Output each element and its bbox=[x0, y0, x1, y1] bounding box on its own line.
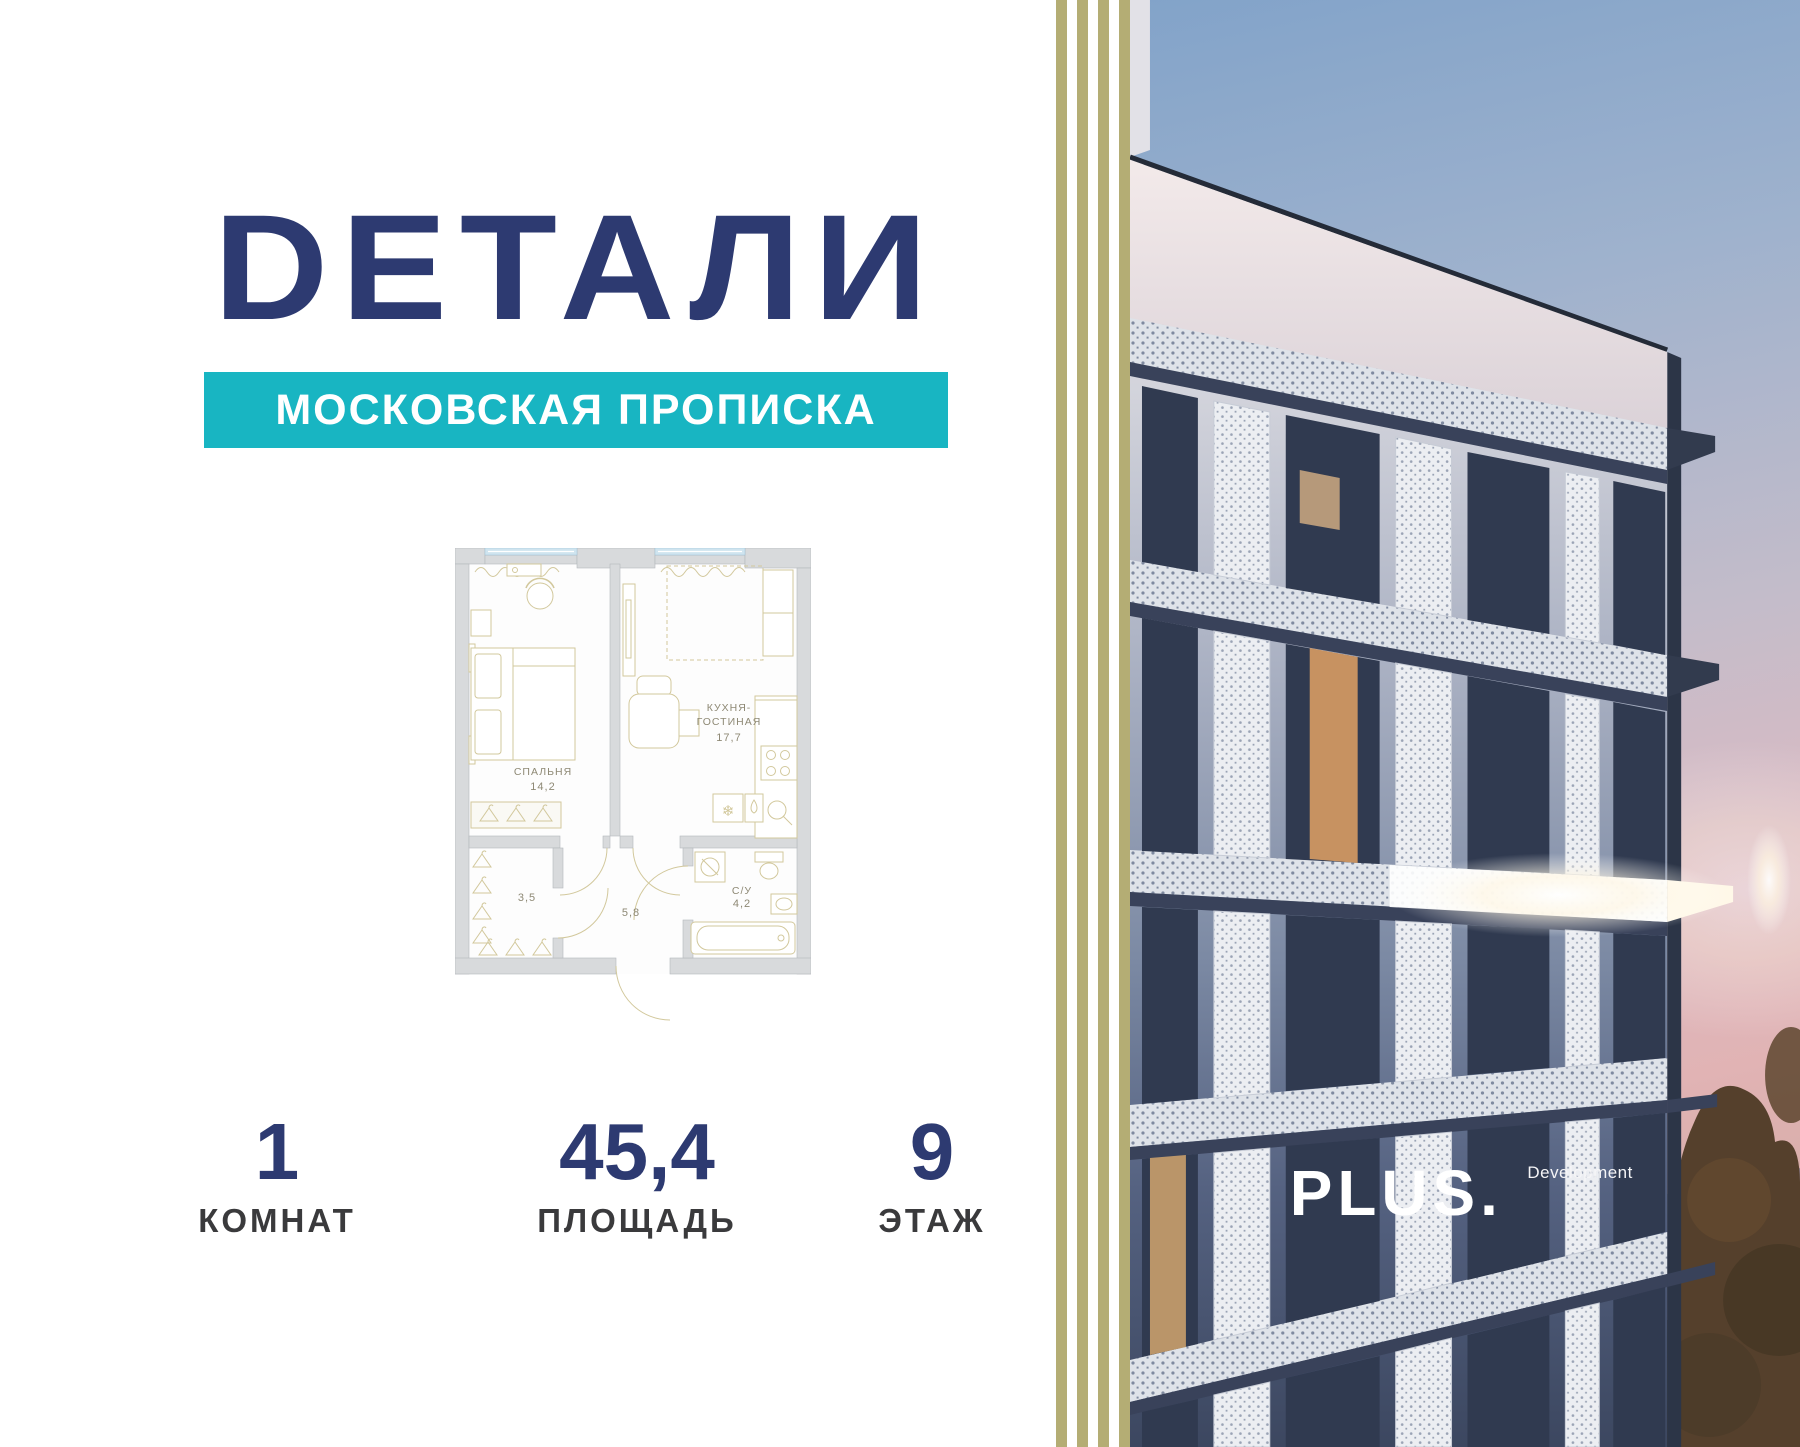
project-logo: DЕТАЛИ bbox=[164, 192, 991, 342]
hallway-area: 5,8 bbox=[622, 907, 640, 919]
bathroom-label: С/У bbox=[732, 885, 752, 897]
tagline-text: МОСКОВСКАЯ ПРОПИСКА bbox=[275, 386, 876, 435]
bedroom-area: 14,2 bbox=[530, 781, 555, 793]
developer-suffix: Development bbox=[1527, 1163, 1632, 1182]
building-photo-svg: PLUS. Development bbox=[1130, 0, 1800, 1447]
wardrobe-area: 3,5 bbox=[518, 892, 536, 904]
ad-poster: DЕТАЛИ МОСКОВСКАЯ ПРОПИСКА bbox=[0, 0, 1800, 1447]
stripe-divider bbox=[1056, 0, 1130, 1447]
building-photo: PLUS. Development bbox=[1130, 0, 1800, 1447]
stat-area-value: 45,4 bbox=[507, 1112, 767, 1192]
kitchen-label1: КУХНЯ- bbox=[707, 702, 752, 714]
stat-area-label: ПЛОЩАДЬ bbox=[507, 1202, 767, 1240]
stat-rooms: 1 КОМНАТ bbox=[147, 1112, 407, 1240]
bedroom-label: СПАЛЬНЯ bbox=[514, 766, 572, 778]
stat-floor-label: ЭТАЖ bbox=[802, 1202, 1062, 1240]
developer-name: PLUS. bbox=[1290, 1157, 1503, 1229]
floorplan: ❄ bbox=[455, 548, 811, 1023]
stat-floor: 9 ЭТАЖ bbox=[802, 1112, 1062, 1240]
tagline-banner: МОСКОВСКАЯ ПРОПИСКА bbox=[204, 372, 948, 448]
kitchen-label2: ГОСТИНАЯ bbox=[697, 716, 762, 728]
floorplan-svg: ❄ bbox=[455, 548, 811, 1023]
fridge-icon: ❄ bbox=[722, 803, 735, 820]
left-panel: DЕТАЛИ МОСКОВСКАЯ ПРОПИСКА bbox=[0, 0, 1056, 1447]
stat-floor-value: 9 bbox=[802, 1112, 1062, 1192]
stat-area: 45,4 ПЛОЩАДЬ bbox=[507, 1112, 767, 1240]
foreground-edge bbox=[1130, 0, 1150, 157]
stat-rooms-value: 1 bbox=[147, 1112, 407, 1192]
kitchen-area: 17,7 bbox=[716, 732, 741, 744]
stat-rooms-label: КОМНАТ bbox=[147, 1202, 407, 1240]
bathroom-area: 4,2 bbox=[733, 898, 751, 910]
